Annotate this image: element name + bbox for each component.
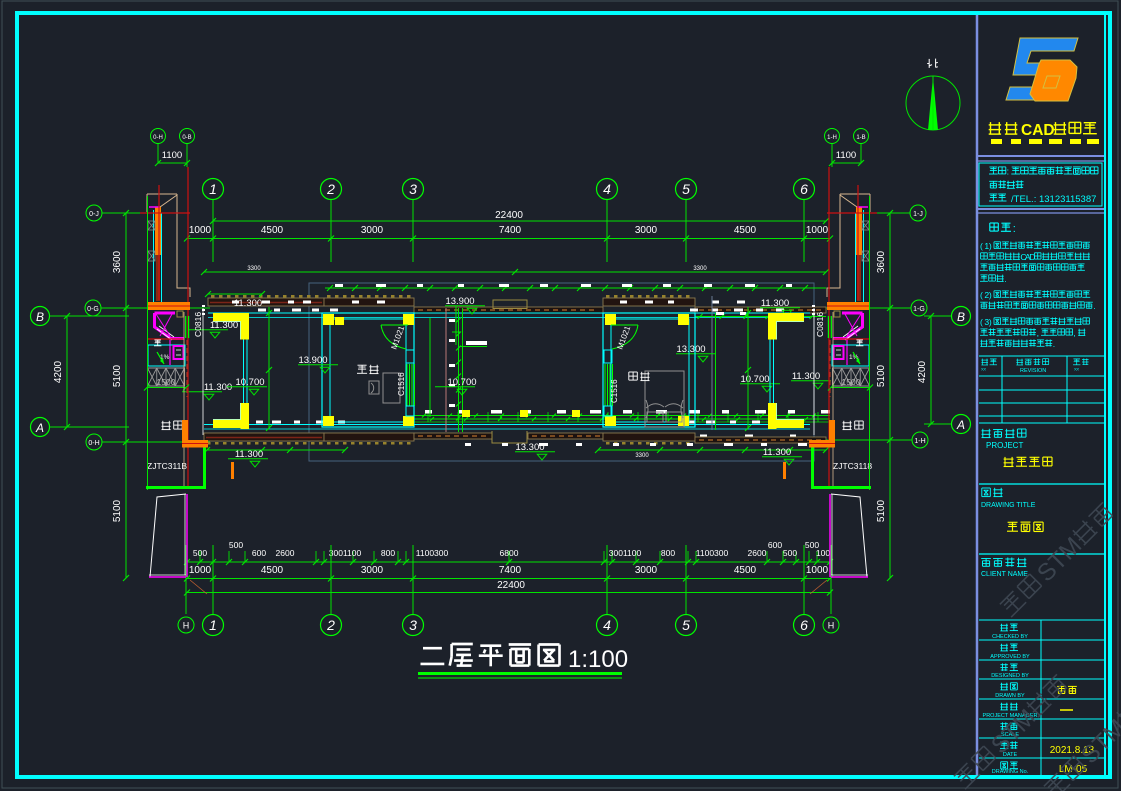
svg-text:,: , [1073,328,1075,338]
svg-text:3: 3 [409,617,417,633]
svg-text:,: , [1037,328,1039,338]
svg-text:4500: 4500 [734,225,757,236]
svg-text:1000: 1000 [189,565,212,576]
svg-text:1100: 1100 [836,150,856,161]
svg-text:500: 500 [783,548,797,558]
svg-text:4200: 4200 [917,360,928,383]
svg-text:H: H [183,621,190,631]
svg-text:C1516: C1516 [397,372,406,396]
svg-text:4500: 4500 [261,565,284,576]
svg-text:3300: 3300 [635,453,649,459]
svg-text:DRAWN BY: DRAWN BY [995,693,1025,699]
svg-text:3001100: 3001100 [329,548,362,558]
svg-text:4200: 4200 [53,360,64,383]
svg-text:(: ( [980,317,983,327]
svg-text:A: A [956,418,965,432]
svg-text:800: 800 [661,548,675,558]
svg-text:(: ( [980,290,983,300]
svg-text:.: . [1053,339,1055,349]
svg-text:.: . [1004,274,1006,284]
svg-text:CHECKED BY: CHECKED BY [992,634,1028,640]
svg-text:2600: 2600 [748,548,767,558]
svg-text:): ) [989,290,992,300]
svg-text:2: 2 [326,181,335,197]
svg-text:3: 3 [409,181,417,197]
svg-text:1100300: 1100300 [696,548,729,558]
svg-text:/TEL.: 13123115387: /TEL.: 13123115387 [1011,194,1096,205]
svg-text:C1516: C1516 [610,379,619,403]
svg-text:1-G: 1-G [913,306,925,313]
svg-text:5100: 5100 [112,499,123,522]
svg-text:1000: 1000 [189,225,212,236]
svg-text::: : [1007,167,1010,178]
svg-text:.: . [1093,301,1095,311]
svg-text:6800: 6800 [500,548,519,558]
svg-text:11.300: 11.300 [234,298,262,309]
svg-text:6: 6 [800,617,808,633]
svg-text:1: 1 [209,181,217,197]
svg-text:): ) [989,317,992,327]
svg-text:3600: 3600 [876,250,887,273]
svg-text:7400: 7400 [499,565,522,576]
svg-text:C0816: C0816 [193,312,203,337]
svg-text:1-H: 1-H [914,438,925,445]
svg-text:22400: 22400 [497,580,525,591]
svg-text:CAD: CAD [1021,122,1055,139]
svg-text:A: A [35,421,44,435]
svg-text:0-H: 0-H [88,440,99,447]
svg-text:5100: 5100 [876,499,887,522]
svg-text:REVISION: REVISION [1020,368,1046,374]
svg-text:1100300: 1100300 [416,548,449,558]
svg-text:1000: 1000 [806,225,829,236]
svg-text:100: 100 [816,548,830,558]
svg-text:3000: 3000 [361,225,384,236]
svg-text:3000: 3000 [635,565,658,576]
svg-text::: : [1013,223,1016,235]
svg-text:C0816: C0816 [815,312,825,337]
svg-text:X: X [983,367,986,372]
svg-text:B: B [36,310,44,324]
svg-text:5100: 5100 [876,364,887,387]
svg-text:500: 500 [193,548,207,558]
svg-text:DRAWING No.: DRAWING No. [992,769,1029,775]
svg-text:4500: 4500 [734,565,757,576]
svg-text:5: 5 [682,617,690,633]
svg-text:B: B [957,310,965,324]
svg-text:PROJECT: PROJECT [986,441,1023,450]
svg-text:ZJTC3118: ZJTC3118 [833,461,872,471]
svg-text:1-H: 1-H [827,135,837,141]
svg-text:4: 4 [603,617,611,633]
svg-text:4: 4 [603,181,611,197]
svg-text:H: H [828,621,835,631]
svg-text:5: 5 [682,181,690,197]
svg-text:500: 500 [229,540,243,550]
svg-text:22400: 22400 [495,210,523,221]
svg-text:APPROVED BY: APPROVED BY [990,654,1030,660]
svg-text:(: ( [980,241,983,251]
svg-text:3000: 3000 [361,565,384,576]
svg-text:): ) [989,241,992,251]
svg-text:600: 600 [252,548,266,558]
svg-text:2600: 2600 [276,548,295,558]
svg-text:DRAWING TITLE: DRAWING TITLE [981,502,1036,509]
svg-text:4500: 4500 [261,225,284,236]
svg-text:3001100: 3001100 [609,548,642,558]
svg-text:1000: 1000 [806,565,829,576]
svg-text:1: 1 [209,617,217,633]
svg-text:3300: 3300 [247,266,261,272]
svg-text:1:100: 1:100 [568,646,628,673]
svg-text:ZJTC311B: ZJTC311B [147,461,187,471]
svg-text:3300: 3300 [693,266,707,272]
svg-text:3600: 3600 [112,250,123,273]
svg-text:CLIENT NAME: CLIENT NAME [981,571,1028,578]
svg-text:7400: 7400 [499,225,522,236]
svg-text:0-H: 0-H [153,135,163,141]
svg-text:2: 2 [326,617,335,633]
svg-text:0-B: 0-B [182,135,191,141]
svg-text:0-J: 0-J [89,211,99,218]
svg-text:1-B: 1-B [856,135,865,141]
svg-text:6: 6 [800,181,808,197]
svg-text:600: 600 [768,540,782,550]
svg-text:5100: 5100 [112,364,123,387]
svg-text:DESIGNED BY: DESIGNED BY [991,673,1029,679]
svg-text:3000: 3000 [635,225,658,236]
svg-text:800: 800 [381,548,395,558]
svg-text:1100: 1100 [162,150,182,161]
svg-text:1500: 1500 [157,377,176,387]
svg-text:1-J: 1-J [913,211,923,218]
svg-text:1500: 1500 [842,377,861,387]
svg-text:0-G: 0-G [87,306,99,313]
svg-text:X: X [1076,367,1079,372]
